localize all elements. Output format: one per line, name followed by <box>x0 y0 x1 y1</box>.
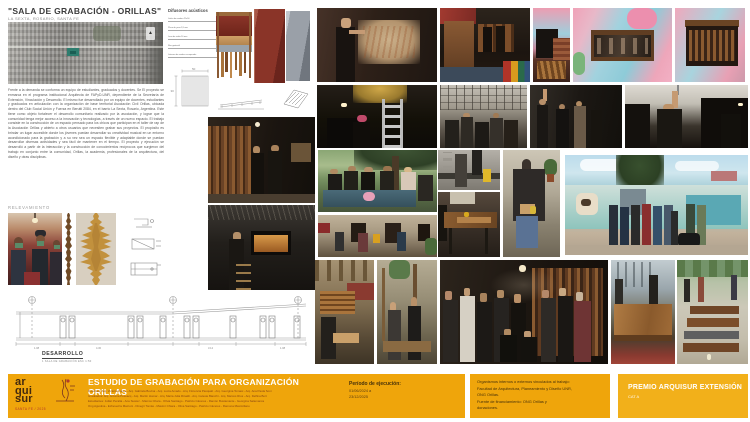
photo-table-saw-detail <box>450 192 475 204</box>
photo-craftsman-detail <box>516 216 539 248</box>
photo-team-group-detail <box>558 296 573 362</box>
photo-finished-room-detail <box>208 194 315 203</box>
page-subtitle: LA SEXTA, ROSARIO, SANTA FE <box>8 16 79 21</box>
photo-finished-room-detail <box>255 122 260 127</box>
callout-label: Listones de madera recuperada <box>168 54 218 58</box>
svg-text:1.08: 1.08 <box>280 346 286 350</box>
photo-mural-group-detail <box>631 205 640 245</box>
arquisur-logo: ar qui sur <box>15 378 33 404</box>
credit-line: Ong Agustina - Echeverría Marconi - Dine… <box>88 405 340 408</box>
photo-team-group-detail <box>460 296 475 362</box>
aerial-map-photo-detail <box>93 26 121 41</box>
photo-ceiling-insulation-detail <box>341 103 347 107</box>
photo-woodshop-benches-detail <box>333 333 360 343</box>
photo-mural-group-detail <box>671 211 678 245</box>
photo-mural-mirror-detail <box>597 38 648 54</box>
relevamiento-interior-photo-detail <box>50 252 62 285</box>
photo-dark-room-work-detail <box>591 110 602 148</box>
photo-team-group-detail <box>574 301 591 362</box>
photo-team-group-detail <box>464 288 471 296</box>
periodo-start-date: 01/06/2024 a <box>349 389 371 393</box>
photo-panels-yard-detail <box>677 260 748 277</box>
photo-woodshop-bench2-detail <box>408 306 421 360</box>
callout-label: Film geotextil <box>168 45 218 49</box>
svg-text:4.30: 4.30 <box>96 346 102 350</box>
photo-panels-yard-detail <box>690 306 740 314</box>
photo-window-ladder-detail <box>254 235 288 252</box>
callout-label: Placa de yeso 9,5 mm <box>168 27 218 31</box>
organismos-line: ONG Orillas. <box>477 393 607 397</box>
photo-window-ladder-detail <box>236 258 251 290</box>
photo-finished-room-detail <box>208 126 251 195</box>
waveform-panel-shape <box>76 213 116 285</box>
photo-mural-mirror-detail <box>573 52 585 74</box>
photo-panel-mockup-detail <box>503 61 530 82</box>
photo-craftsman-detail <box>547 174 554 183</box>
relevamiento-interior-photo-detail <box>54 245 60 249</box>
photo-team-group-detail <box>514 294 521 302</box>
aerial-map-photo <box>8 22 163 84</box>
photo-mural-edge <box>533 8 570 82</box>
roof-hatch-detail <box>282 86 310 110</box>
photo-floor-work-detail <box>438 173 500 179</box>
photo-woodshop-bench2-detail <box>389 260 410 279</box>
photo-courtyard <box>318 215 437 257</box>
photo-courtyard-detail <box>373 234 380 243</box>
photo-floor-work <box>438 150 500 190</box>
photo-ceiling-painting-detail <box>721 114 741 148</box>
photo-team-group-detail <box>559 288 566 296</box>
north-arrow-icon: ▲ <box>146 27 155 40</box>
photo-wall-plastering-detail <box>341 18 351 28</box>
photo-team-group <box>440 260 608 364</box>
photo-mural-group-detail <box>581 199 590 206</box>
photo-ceiling-grid-detail <box>475 122 489 148</box>
aerial-map-photo-detail <box>8 22 163 84</box>
relevamiento-interior-photo-detail <box>32 218 37 223</box>
photo-table-saw <box>438 192 500 257</box>
relevamiento-label: RELEVAMIENTO <box>8 205 50 210</box>
relevamiento-interior-photo-detail <box>15 243 23 248</box>
waveform-strip-shape <box>64 213 73 285</box>
photo-bench-group-detail <box>363 192 375 201</box>
photo-woodshop-benches-detail <box>320 291 355 314</box>
photo-mural-group-detail <box>653 206 662 245</box>
photo-panel-mockup-detail <box>440 67 503 82</box>
periodo-end-date: 23/12/2025 <box>349 395 368 399</box>
photo-craftsman-detail <box>530 206 536 215</box>
arquisur-logo-line3: sur <box>15 395 33 404</box>
photo-ceiling-grid-detail <box>490 118 502 148</box>
photo-team-group-detail <box>443 300 458 362</box>
photo-team-group-detail <box>445 291 452 299</box>
photo-panel-trestle-detail <box>649 275 658 306</box>
photo-woodshop-bench2-detail <box>383 341 431 351</box>
photo-panel-mockup-detail <box>483 27 492 52</box>
photo-floor-work-detail <box>483 169 491 182</box>
photo-team-group-detail <box>542 290 549 298</box>
photo-mural-mirror <box>573 8 672 82</box>
panel-plan-drawing: 5030 <box>170 66 216 114</box>
organismos-line: Fuente de financiamiento: ONG Orillas y <box>477 400 607 404</box>
photo-dark-room-work-detail <box>574 106 586 148</box>
organismos-line: donaciones. <box>477 406 607 410</box>
photo-panel-mockup-detail <box>496 26 505 53</box>
desarrollo-label: DESARROLLO <box>42 351 83 359</box>
waveform-panel-image <box>76 213 116 285</box>
photo-team-group-detail <box>576 292 583 300</box>
waveform-strip-image <box>64 213 73 285</box>
photo-panels-yard-detail <box>731 275 737 300</box>
photo-courtyard-detail <box>318 223 330 233</box>
photo-ceiling-grid <box>440 85 527 148</box>
photo-wall-plastering-detail <box>363 26 416 59</box>
detail-sketches <box>126 213 163 285</box>
photo-mural-group-detail <box>620 207 629 245</box>
relevamiento-interior-photo-detail <box>37 241 44 246</box>
panel-section-drawing <box>216 92 266 110</box>
photo-ceiling-grid-detail <box>504 120 518 148</box>
acoustic-panel-exploded-diagram <box>216 12 252 78</box>
photo-wall-plastering-detail <box>336 27 355 82</box>
photo-woodshop-bench2-detail <box>388 310 401 360</box>
aerial-map-photo-detail <box>70 51 76 55</box>
callout-label: Lana de vidrio 50 mm <box>168 36 218 40</box>
photo-table-saw-detail <box>449 228 452 254</box>
credit-line: Estudiantes: Julián Peralta - Ana Suárez… <box>88 400 340 403</box>
photo-craftsman <box>503 150 560 257</box>
photo-panel-trestle-detail <box>614 304 673 339</box>
periodo-heading: Período de ejecución: <box>349 381 401 387</box>
photo-ceiling-insulation-detail <box>353 122 370 148</box>
svg-text:3.12: 3.12 <box>208 346 214 350</box>
callout-label: Listón de madera 25x50 <box>168 18 218 22</box>
photo-woodshop-bench2-detail <box>382 268 386 341</box>
photo-team-group-detail <box>497 290 504 298</box>
photo-mural-group <box>565 155 748 255</box>
photo-team-group-detail <box>480 293 487 301</box>
photo-table-saw-detail <box>485 228 488 254</box>
photo-finished-room <box>208 117 315 203</box>
photo-window-ladder <box>208 205 315 290</box>
aerial-map-photo-detail <box>8 46 163 48</box>
intro-paragraph: Frente a la demanda se conforma un equip… <box>8 88 164 159</box>
photo-woodshop-bench2 <box>377 260 437 364</box>
photo-ceiling-painting <box>625 85 748 148</box>
photo-mural-edge-detail <box>553 38 570 60</box>
photo-ceiling-grid-detail <box>440 85 527 110</box>
photo-ceiling-grid-detail <box>461 117 473 149</box>
photo-courtyard-detail <box>397 232 407 251</box>
photo-mural-group-detail <box>565 245 748 255</box>
arquisur-logo-tagline: SANTA FE / 2025 <box>15 407 46 411</box>
page-title: "SALA DE GRABACIÓN - ORILLAS" <box>8 6 161 16</box>
svg-text:1.08: 1.08 <box>34 346 40 350</box>
photo-bench-group <box>318 150 437 212</box>
desarrollo-scale-label: 1 SALA DE GRABACIÓN ESC 1:50 <box>42 360 91 363</box>
photo-panels-yard-detail <box>683 343 740 351</box>
photo-panels-yard <box>677 260 748 364</box>
photo-dark-room-work-detail <box>556 109 569 148</box>
photo-mural-group-detail <box>675 161 719 171</box>
photo-team-group-detail <box>521 337 538 362</box>
photo-ceiling-painting-detail <box>657 109 682 148</box>
photo-mural-group-detail <box>642 204 651 245</box>
photo-mural-group-detail <box>711 171 737 181</box>
photo-courtyard-detail <box>335 232 345 251</box>
photo-panel-mockup-detail <box>444 21 475 73</box>
credit-line: Docentes: Arq. Victoria Funes - Arq. Gab… <box>88 390 340 393</box>
photo-slat-opening-detail <box>689 30 735 61</box>
photo-team-group-detail <box>500 335 517 362</box>
photo-slat-opening <box>675 8 745 82</box>
photo-floor-work-detail <box>472 150 482 175</box>
photo-wall-plastering-detail <box>349 30 365 34</box>
panel-render-grey <box>286 11 310 81</box>
photo-mural-group-detail <box>609 205 618 245</box>
photo-team-group-detail <box>477 302 492 362</box>
photo-panels-yard-detail <box>687 318 740 326</box>
photo-dark-room-work-detail <box>537 105 548 148</box>
photo-panels-yard-detail <box>684 279 690 302</box>
relevamiento-interior-photo <box>8 213 62 285</box>
photo-courtyard-detail <box>358 233 368 252</box>
elevation-drawing: 1.084.303.121.08 <box>8 292 310 350</box>
photo-dark-room-work <box>530 85 622 148</box>
photo-bench-group-detail <box>418 175 433 201</box>
arquisur-logo-doodle-icon <box>46 376 78 406</box>
photo-table-saw-detail <box>457 217 491 223</box>
difusores-section-label: Difusores acústicos <box>168 8 208 13</box>
photo-finished-room-detail <box>291 143 310 162</box>
photo-panel-trestle <box>611 260 675 364</box>
photo-floor-work-detail <box>455 154 466 187</box>
premio-title: PREMIO ARQUISUR EXTENSIÓN <box>628 384 742 391</box>
relevamiento-interior-photo-detail <box>24 272 40 285</box>
svg-text:30: 30 <box>171 89 175 93</box>
photo-panel-mockup <box>440 8 530 82</box>
photo-mural-edge-detail <box>537 61 567 79</box>
photo-woodshop-benches-detail <box>315 260 374 281</box>
photo-wall-plastering <box>317 8 437 82</box>
photo-ceiling-insulation-detail <box>384 100 401 148</box>
panel-render-red <box>254 9 285 83</box>
photo-ceiling-painting-detail <box>625 104 650 148</box>
organismos-line: Facultad de Arquitectura, Planeamiento y… <box>477 387 607 391</box>
photo-ceiling-grid-detail <box>445 120 459 148</box>
photo-panels-yard-detail <box>684 331 739 339</box>
photo-panels-yard-detail <box>707 354 711 360</box>
sketch-lines <box>126 213 163 285</box>
photo-panels-yard-detail <box>698 277 704 302</box>
credit-line: Graduados: Arq. Antonia Pessacq - Arq. M… <box>88 395 340 398</box>
photo-mural-mirror-detail <box>627 8 657 29</box>
photo-table-saw-detail <box>464 212 469 217</box>
photo-ceiling-insulation <box>317 85 437 148</box>
photo-team-group-detail <box>541 298 556 361</box>
photo-courtyard-detail <box>425 238 437 255</box>
premio-category: CAT A <box>628 394 639 399</box>
svg-text:50: 50 <box>192 67 196 71</box>
photo-window-ladder-detail <box>208 205 315 220</box>
photo-woodshop-benches <box>315 260 374 364</box>
photo-panel-trestle-detail <box>614 335 673 341</box>
organismos-line: Organismos internos o externos vinculado… <box>477 380 607 384</box>
presentation-board: "SALA DE GRABACIÓN - ORILLAS" LA SEXTA, … <box>0 0 750 422</box>
